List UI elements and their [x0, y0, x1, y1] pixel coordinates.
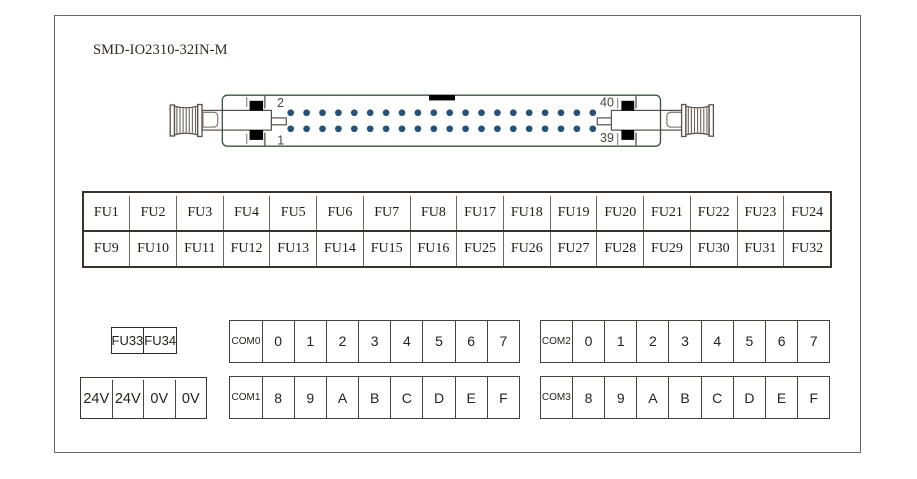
svg-text:1: 1	[277, 133, 284, 147]
svg-text:2: 2	[277, 96, 284, 110]
svg-text:40: 40	[600, 96, 614, 110]
svg-text:39: 39	[600, 131, 614, 145]
